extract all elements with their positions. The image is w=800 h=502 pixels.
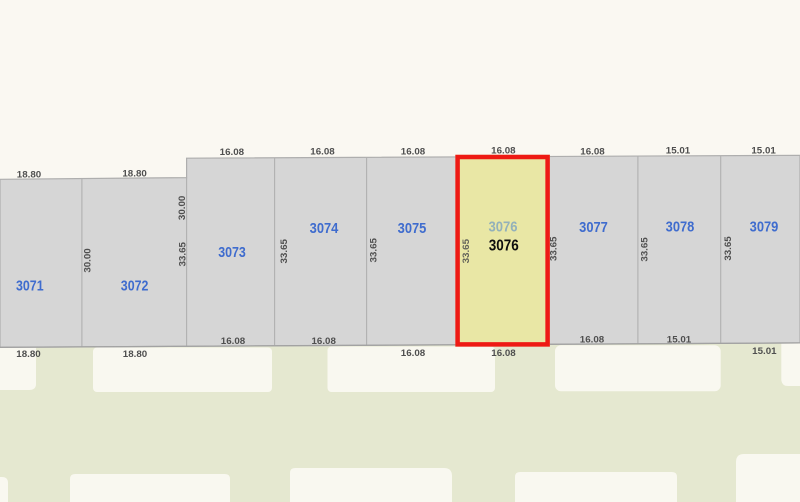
svg-text:30.00: 30.00 — [81, 248, 92, 272]
svg-text:15.01: 15.01 — [666, 145, 690, 156]
svg-text:16.08: 16.08 — [580, 333, 604, 344]
svg-text:15.01: 15.01 — [752, 345, 776, 356]
svg-text:33.65: 33.65 — [460, 239, 471, 263]
svg-text:18.80: 18.80 — [16, 348, 40, 359]
svg-text:33.65: 33.65 — [638, 237, 649, 261]
svg-text:3076: 3076 — [489, 238, 519, 255]
svg-text:16.08: 16.08 — [580, 146, 604, 157]
svg-text:3078: 3078 — [666, 219, 695, 236]
svg-text:3074: 3074 — [310, 220, 339, 237]
svg-text:18.80: 18.80 — [123, 348, 147, 359]
svg-text:3076: 3076 — [489, 220, 518, 236]
svg-text:3077: 3077 — [579, 219, 608, 236]
svg-text:33.65: 33.65 — [278, 239, 289, 263]
svg-text:16.08: 16.08 — [310, 146, 334, 157]
svg-text:16.08: 16.08 — [401, 145, 425, 156]
svg-text:33.65: 33.65 — [368, 238, 379, 262]
svg-text:3071: 3071 — [16, 278, 44, 295]
svg-text:16.08: 16.08 — [220, 146, 244, 157]
svg-text:16.08: 16.08 — [401, 347, 425, 358]
svg-text:16.08: 16.08 — [491, 145, 515, 156]
svg-text:18.80: 18.80 — [17, 169, 41, 180]
svg-text:3073: 3073 — [218, 244, 246, 261]
svg-text:3075: 3075 — [398, 220, 427, 237]
svg-text:16.08: 16.08 — [312, 335, 336, 346]
svg-text:16.08: 16.08 — [221, 335, 245, 346]
svg-text:18.80: 18.80 — [122, 168, 146, 179]
svg-text:15.01: 15.01 — [751, 144, 775, 155]
svg-text:3079: 3079 — [750, 219, 779, 236]
svg-text:33.65: 33.65 — [177, 242, 188, 266]
svg-text:33.65: 33.65 — [548, 237, 559, 261]
svg-text:3072: 3072 — [121, 278, 149, 295]
svg-text:33.65: 33.65 — [722, 236, 733, 260]
svg-text:15.01: 15.01 — [667, 333, 691, 344]
svg-text:16.08: 16.08 — [491, 347, 515, 358]
svg-text:30.00: 30.00 — [176, 196, 187, 220]
